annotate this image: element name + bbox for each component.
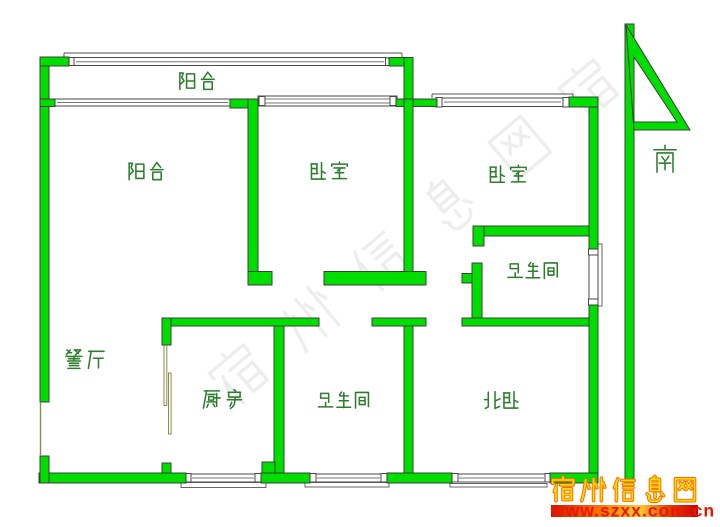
svg-text:www.szxx.com.cn: www.szxx.com.cn (550, 501, 715, 521)
